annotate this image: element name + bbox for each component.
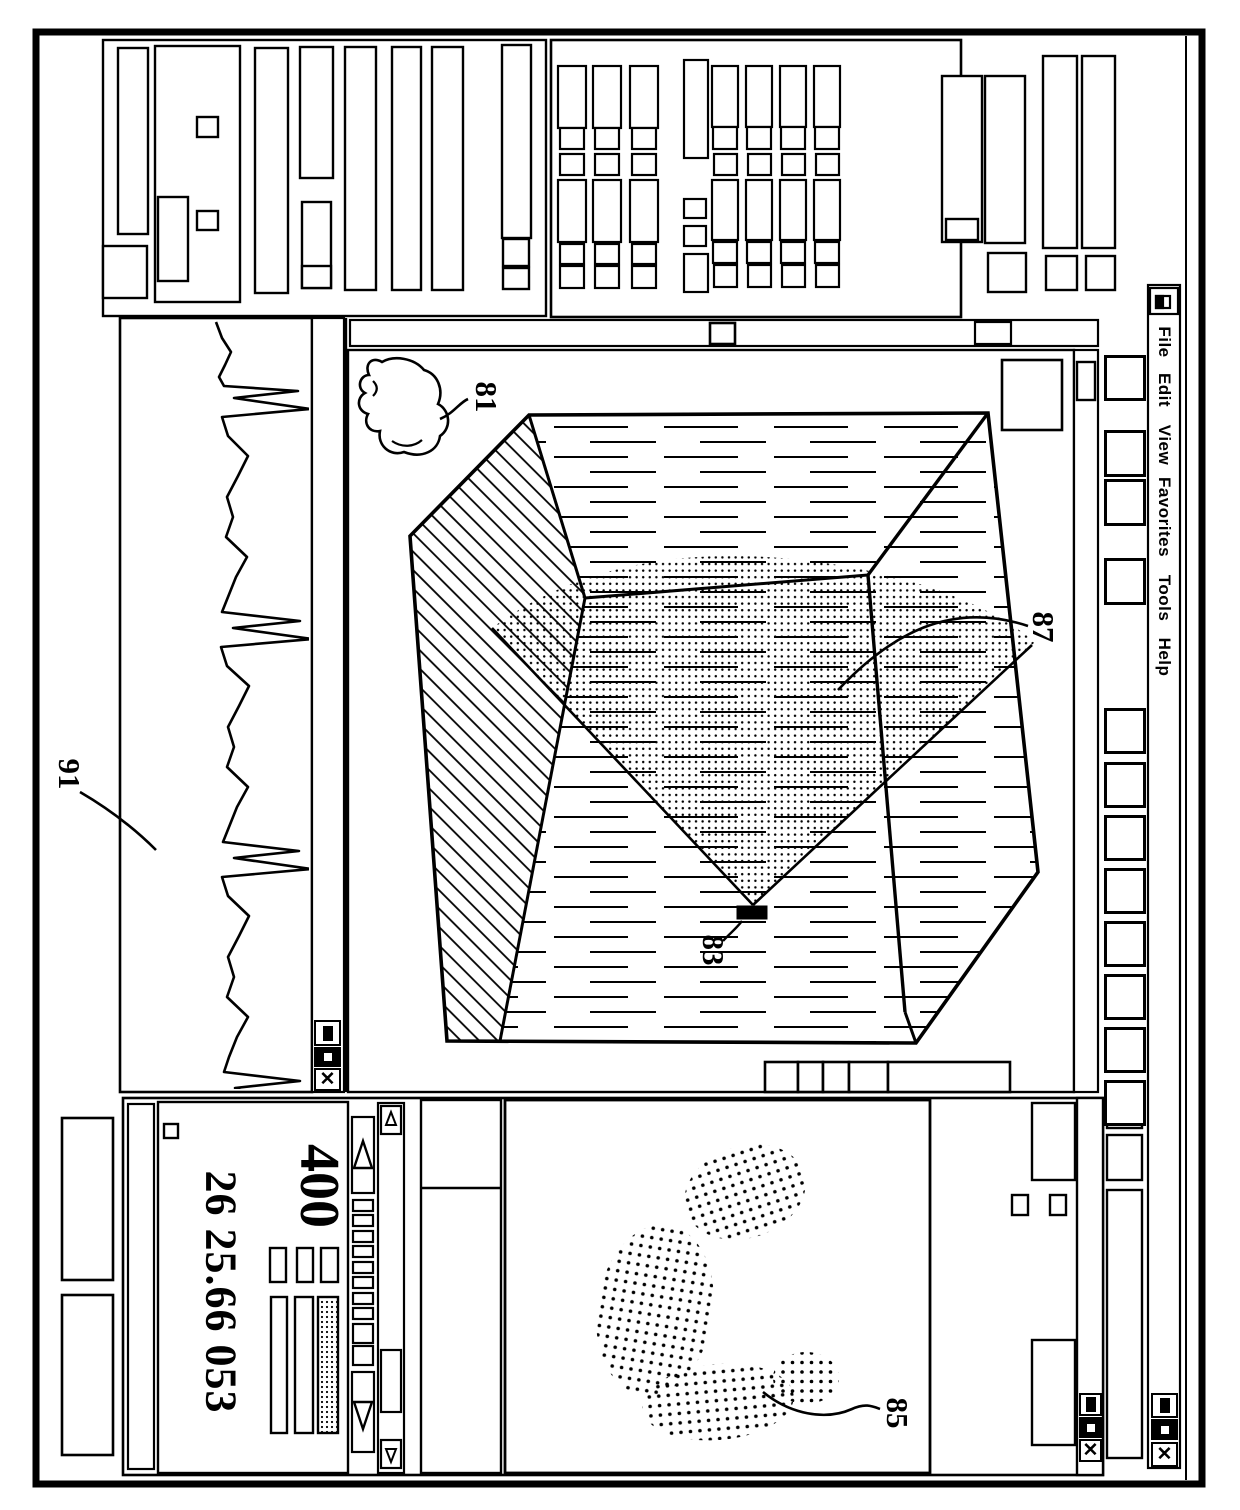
viewport-scrollbar-right-thumb[interactable] xyxy=(1077,362,1095,400)
ref-label-87: 87 xyxy=(1025,612,1061,643)
slider-strip[interactable] xyxy=(352,1117,374,1452)
ecg-close-button[interactable]: ✕ xyxy=(314,1068,341,1091)
ecg-minimize-button[interactable] xyxy=(314,1020,341,1046)
toolbar-button-7[interactable] xyxy=(1104,815,1146,861)
far-right-bars xyxy=(1107,1103,1142,1458)
side-split-panel xyxy=(421,1100,501,1473)
checkbox-b[interactable] xyxy=(1050,1195,1066,1215)
maximize-icon xyxy=(322,1051,334,1063)
readout-scrollbar-thumb[interactable] xyxy=(381,1350,401,1412)
maximize-icon xyxy=(1159,1424,1171,1436)
menu-item-tools[interactable]: Tools xyxy=(1154,575,1174,622)
ref-label-91: 91 xyxy=(51,759,87,790)
top-middle-control-panel xyxy=(551,40,961,317)
ecg-maximize-button[interactable] xyxy=(314,1047,341,1067)
minimize-icon xyxy=(323,1026,333,1041)
bottom-left-buttons[interactable] xyxy=(62,1118,113,1455)
ref-label-81: 81 xyxy=(468,382,504,413)
bottom-window xyxy=(123,1098,1103,1475)
menu-item-help[interactable]: Help xyxy=(1154,638,1174,677)
close-icon: ✕ xyxy=(1083,1441,1099,1460)
readout-scrollbar-track[interactable] xyxy=(378,1103,404,1473)
line-art-layer xyxy=(0,0,1240,1510)
ref-label-83: 83 xyxy=(695,935,731,966)
toolbar-button-10[interactable] xyxy=(1104,974,1146,1020)
viewport-window xyxy=(346,318,1098,1092)
checkbox-a[interactable] xyxy=(1012,1195,1028,1215)
minimize-icon xyxy=(1160,1398,1170,1413)
system-menu-icon-glyph-fill xyxy=(1156,296,1163,308)
viewport-scrollbar-right[interactable] xyxy=(1074,350,1098,1092)
menu-item-view[interactable]: View xyxy=(1154,425,1174,465)
menu-item-edit[interactable]: Edit xyxy=(1154,373,1174,407)
toolbar-button-11[interactable] xyxy=(1104,1027,1146,1073)
readout-panel-checkbox[interactable] xyxy=(164,1124,178,1138)
toolbar-button-1[interactable] xyxy=(1104,355,1146,401)
probe-icon xyxy=(737,906,767,919)
subwindow-maximize-button[interactable] xyxy=(1079,1417,1102,1438)
bottom-left-button-1[interactable] xyxy=(62,1118,113,1280)
toolbar-button-5[interactable] xyxy=(1104,708,1146,754)
toolbar-button-3[interactable] xyxy=(1104,479,1146,526)
viewport-scrollbar-top-button[interactable] xyxy=(975,322,1011,344)
main-maximize-button[interactable] xyxy=(1151,1419,1178,1440)
toolbar-button-6[interactable] xyxy=(1104,762,1146,808)
bottom-window-left-bar xyxy=(128,1104,154,1469)
toolbar-button-4[interactable] xyxy=(1104,558,1146,605)
minimize-icon xyxy=(1086,1397,1096,1412)
patent-ui-figure: File Edit View Favorites Tools Help 400 … xyxy=(0,0,1240,1510)
menu-item-file[interactable]: File xyxy=(1154,326,1174,357)
top-left-toolbox-panel xyxy=(103,40,546,316)
viewport-scrollbar-top-thumb[interactable] xyxy=(710,323,735,344)
map-panel xyxy=(505,1100,930,1473)
level-bar-filled xyxy=(318,1297,338,1433)
main-minimize-button[interactable] xyxy=(1151,1393,1178,1418)
viewport-status-segments xyxy=(765,1062,1010,1092)
toolbar-button-8[interactable] xyxy=(1104,868,1146,914)
toolbar-button-12[interactable] xyxy=(1104,1080,1146,1126)
toolbar-button-9[interactable] xyxy=(1104,921,1146,967)
viewport-overlay-box xyxy=(1002,360,1062,430)
maximize-icon xyxy=(1085,1422,1097,1434)
close-icon: ✕ xyxy=(320,1070,336,1089)
ref-label-85: 85 xyxy=(879,1398,915,1429)
readout-scrollbar[interactable] xyxy=(378,1103,404,1473)
ecg-caption-bar[interactable] xyxy=(312,318,344,1092)
close-icon: ✕ xyxy=(1157,1445,1173,1464)
toolbar-button-2[interactable] xyxy=(1104,430,1146,477)
subwindow-minimize-button[interactable] xyxy=(1079,1393,1102,1416)
ecg-window xyxy=(80,318,344,1092)
top-right-button-bars xyxy=(942,56,1115,292)
menu-item-favorites[interactable]: Favorites xyxy=(1154,477,1174,557)
main-close-button[interactable]: ✕ xyxy=(1151,1442,1178,1467)
readout-primary-value: 400 xyxy=(287,1144,351,1228)
bottom-left-button-2[interactable] xyxy=(62,1295,113,1455)
readout-secondary-values: 26 25.66 053 xyxy=(196,1171,247,1414)
subwindow-close-button[interactable]: ✕ xyxy=(1079,1439,1102,1462)
